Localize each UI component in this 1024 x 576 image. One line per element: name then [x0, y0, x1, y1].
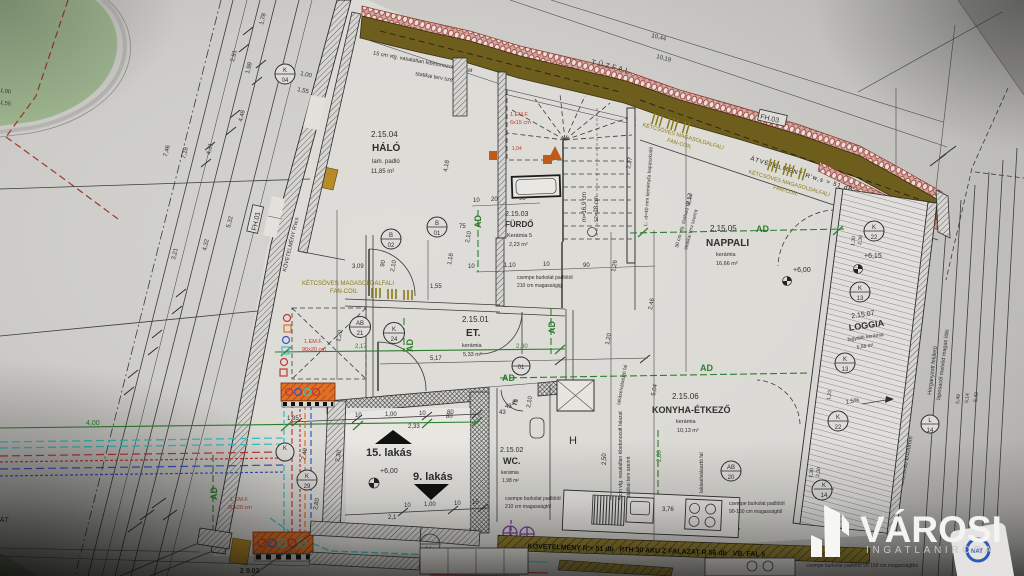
- svg-text:2.15.06: 2.15.06: [672, 392, 699, 401]
- svg-text:10,13 m²: 10,13 m²: [677, 428, 699, 434]
- svg-text:13: 13: [842, 367, 849, 373]
- svg-text:5,43: 5,43: [973, 392, 980, 403]
- svg-text:FÜRDŐ: FÜRDŐ: [505, 220, 533, 229]
- svg-text:2.15.03: 2.15.03: [505, 211, 528, 218]
- svg-text:Kerámia 5: Kerámia 5: [507, 233, 532, 239]
- svg-text:sz=28 cm: sz=28 cm: [594, 196, 600, 222]
- svg-text:1,04: 1,04: [512, 146, 522, 152]
- svg-text:43: 43: [499, 410, 506, 416]
- svg-text:01: 01: [518, 365, 525, 371]
- svg-text:10: 10: [468, 264, 475, 270]
- svg-text:01: 01: [434, 231, 441, 237]
- svg-text:INGATLANIRODA: INGATLANIRODA: [866, 545, 995, 556]
- svg-text:10: 10: [543, 262, 550, 268]
- svg-text:K: K: [836, 415, 840, 421]
- svg-text:KONYHA-ÉTKEZŐ: KONYHA-ÉTKEZŐ: [652, 404, 731, 415]
- svg-text:kerámia: kerámia: [676, 419, 697, 425]
- svg-text:AD: AD: [473, 215, 483, 228]
- svg-text:K: K: [843, 357, 847, 363]
- svg-text:1.EM.F.: 1.EM.F.: [510, 112, 529, 118]
- svg-text:AD: AD: [700, 363, 713, 373]
- svg-text:m=16,9 cm: m=16,9 cm: [582, 192, 588, 222]
- svg-text:B: B: [435, 221, 439, 227]
- svg-text:75: 75: [459, 224, 466, 230]
- svg-text:20: 20: [491, 197, 498, 203]
- svg-text:6x15 cm: 6x15 cm: [510, 120, 531, 126]
- svg-text:1,10: 1,10: [504, 263, 516, 269]
- svg-text:5,49: 5,49: [955, 394, 962, 405]
- svg-text:210 cm magasságig: 210 cm magasságig: [517, 283, 562, 289]
- svg-text:2,30: 2,30: [516, 344, 528, 350]
- svg-text:14: 14: [927, 428, 934, 434]
- svg-text:22: 22: [835, 425, 842, 431]
- svg-text:VÁROSI: VÁROSI: [860, 509, 1002, 550]
- svg-text:AD: AD: [502, 373, 515, 383]
- svg-text:10: 10: [473, 198, 480, 204]
- svg-text:AD: AD: [547, 321, 557, 334]
- svg-text:csempe burkolat padlótól: csempe burkolat padlótól: [517, 275, 573, 281]
- svg-text:5,14: 5,14: [964, 393, 971, 404]
- svg-text:2,23 m²: 2,23 m²: [509, 242, 528, 248]
